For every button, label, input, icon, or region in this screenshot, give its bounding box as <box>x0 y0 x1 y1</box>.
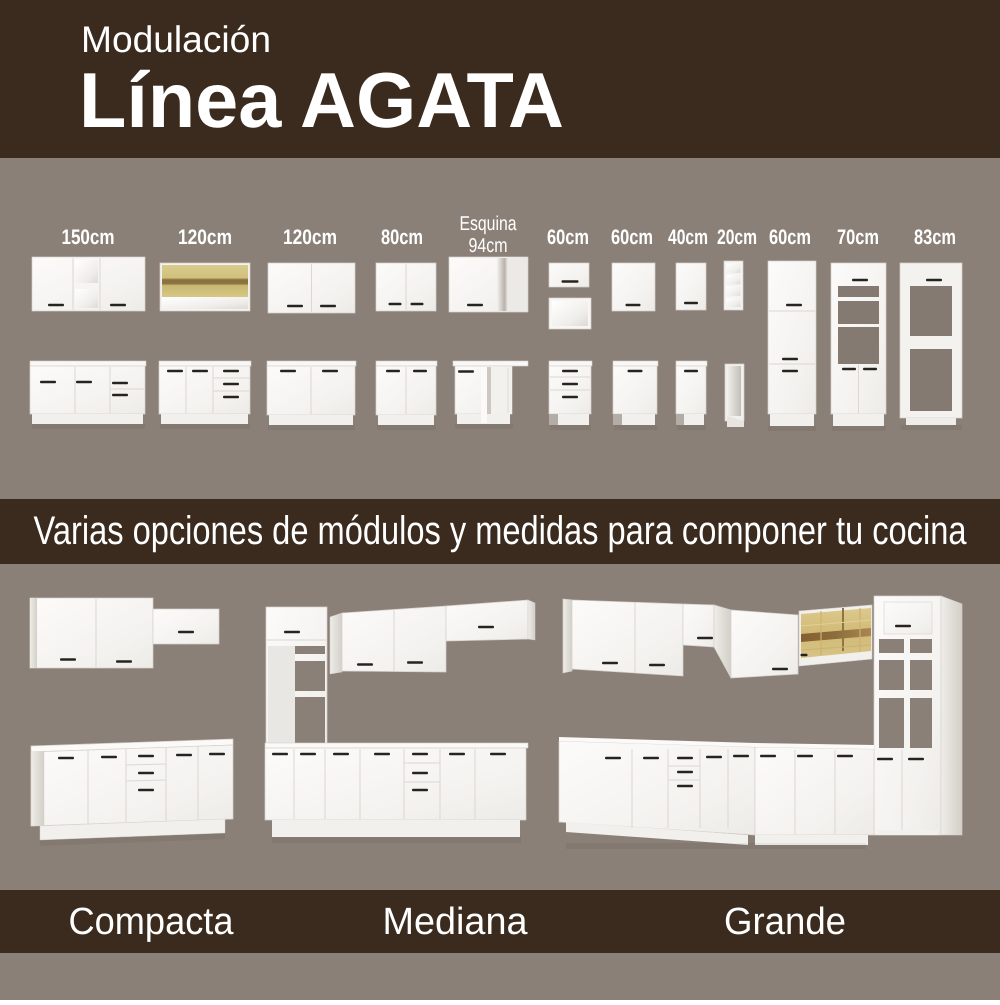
svg-text:Mediana: Mediana <box>383 901 529 943</box>
svg-text:20cm: 20cm <box>717 226 757 249</box>
svg-text:Línea AGATA: Línea AGATA <box>79 56 564 144</box>
svg-text:150cm: 150cm <box>62 226 115 249</box>
svg-text:94cm: 94cm <box>469 235 508 257</box>
svg-text:Compacta: Compacta <box>69 901 235 943</box>
svg-text:Modulación: Modulación <box>81 19 271 60</box>
svg-text:120cm: 120cm <box>283 226 337 249</box>
svg-text:40cm: 40cm <box>668 226 708 249</box>
svg-text:83cm: 83cm <box>914 226 956 249</box>
svg-text:60cm: 60cm <box>547 226 589 249</box>
svg-text:Varias opciones de módulos y m: Varias opciones de módulos y medidas par… <box>34 509 968 553</box>
svg-text:70cm: 70cm <box>837 226 879 249</box>
svg-text:120cm: 120cm <box>178 226 232 249</box>
svg-text:60cm: 60cm <box>611 226 653 249</box>
svg-text:Grande: Grande <box>724 901 846 943</box>
svg-text:60cm: 60cm <box>769 226 811 249</box>
svg-text:80cm: 80cm <box>381 226 423 249</box>
svg-text:Esquina: Esquina <box>460 213 518 235</box>
